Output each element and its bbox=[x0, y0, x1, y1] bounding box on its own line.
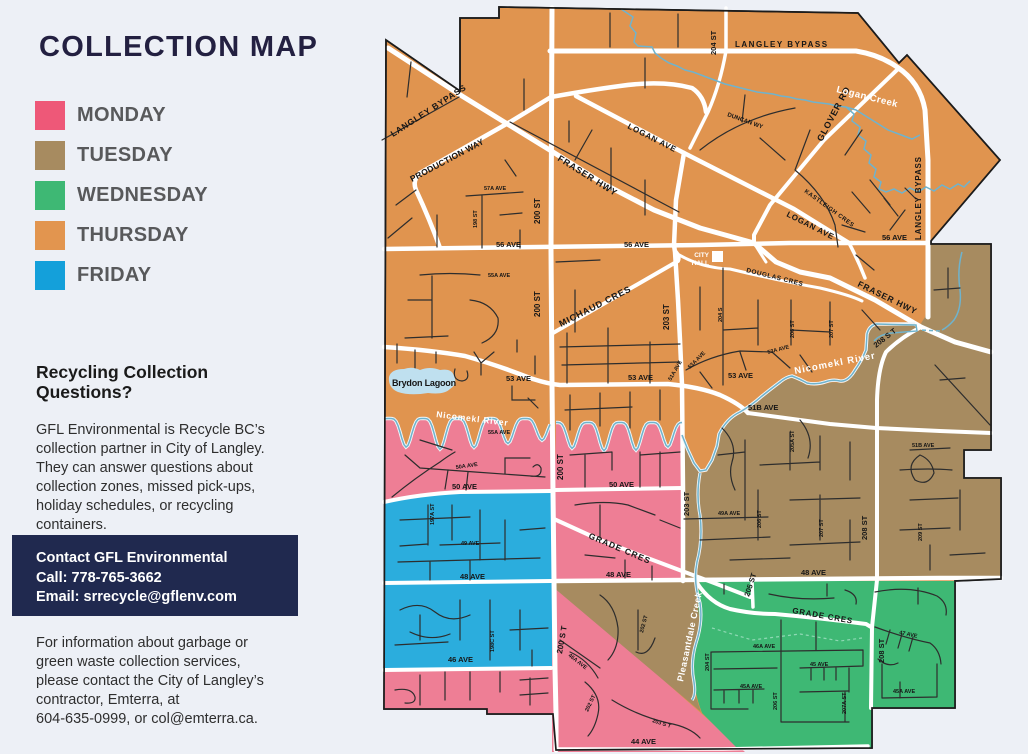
svg-text:200 ST: 200 ST bbox=[533, 291, 542, 317]
svg-text:48 AVE: 48 AVE bbox=[460, 572, 485, 581]
svg-text:56 AVE: 56 AVE bbox=[624, 240, 649, 249]
svg-text:53 AVE: 53 AVE bbox=[506, 374, 531, 383]
svg-text:45A AVE: 45A AVE bbox=[740, 684, 762, 690]
svg-text:208 ST: 208 ST bbox=[860, 515, 869, 540]
svg-text:206 ST: 206 ST bbox=[773, 692, 779, 710]
svg-text:207 ST: 207 ST bbox=[819, 519, 825, 537]
svg-text:45 AVE: 45 AVE bbox=[810, 662, 829, 668]
svg-text:LANGLEY BYPASS: LANGLEY BYPASS bbox=[914, 156, 923, 240]
svg-text:CITY: CITY bbox=[694, 252, 709, 259]
svg-text:49A AVE: 49A AVE bbox=[718, 511, 740, 517]
svg-text:45A AVE: 45A AVE bbox=[893, 689, 915, 695]
svg-text:207A ST: 207A ST bbox=[842, 692, 848, 714]
svg-text:208 ST: 208 ST bbox=[877, 638, 886, 663]
svg-text:53 AVE: 53 AVE bbox=[728, 371, 753, 380]
svg-text:56 AVE: 56 AVE bbox=[496, 240, 521, 249]
svg-text:51B AVE: 51B AVE bbox=[748, 403, 778, 412]
svg-text:49 AVE: 49 AVE bbox=[461, 541, 480, 547]
svg-text:206 ST: 206 ST bbox=[757, 510, 763, 528]
svg-text:203 ST: 203 ST bbox=[662, 304, 671, 330]
svg-text:198 ST: 198 ST bbox=[473, 210, 479, 228]
svg-text:55A AVE: 55A AVE bbox=[488, 430, 510, 436]
svg-text:57A AVE: 57A AVE bbox=[484, 186, 506, 192]
svg-text:56 AVE: 56 AVE bbox=[882, 233, 907, 242]
svg-text:200 ST: 200 ST bbox=[556, 454, 565, 480]
svg-text:51B AVE: 51B AVE bbox=[912, 443, 935, 449]
svg-text:203 ST: 203 ST bbox=[682, 491, 691, 516]
svg-text:200 ST: 200 ST bbox=[533, 198, 542, 224]
svg-text:HALL: HALL bbox=[692, 260, 709, 267]
svg-text:206 ST: 206 ST bbox=[790, 320, 796, 338]
svg-text:53 AVE: 53 AVE bbox=[628, 373, 653, 382]
svg-text:48 AVE: 48 AVE bbox=[801, 568, 826, 577]
svg-text:Brydon Lagoon: Brydon Lagoon bbox=[392, 378, 456, 388]
svg-text:209 ST: 209 ST bbox=[918, 523, 924, 541]
svg-text:198C ST: 198C ST bbox=[490, 630, 496, 652]
svg-text:46 AVE: 46 AVE bbox=[448, 655, 473, 664]
svg-text:204 S: 204 S bbox=[718, 307, 724, 322]
svg-text:205A ST: 205A ST bbox=[790, 430, 796, 452]
svg-text:46A AVE: 46A AVE bbox=[753, 644, 775, 650]
svg-text:50 AVE: 50 AVE bbox=[609, 480, 634, 489]
svg-text:44 AVE: 44 AVE bbox=[631, 737, 656, 746]
svg-text:48 AVE: 48 AVE bbox=[606, 570, 631, 579]
svg-text:55A AVE: 55A AVE bbox=[488, 273, 510, 279]
svg-text:204 ST: 204 ST bbox=[709, 30, 718, 55]
svg-text:207 ST: 207 ST bbox=[829, 320, 835, 338]
svg-text:LANGLEY BYPASS: LANGLEY BYPASS bbox=[735, 40, 829, 49]
svg-text:50 AVE: 50 AVE bbox=[452, 482, 477, 491]
svg-text:204 ST: 204 ST bbox=[705, 653, 711, 671]
svg-text:197A ST: 197A ST bbox=[430, 503, 436, 525]
